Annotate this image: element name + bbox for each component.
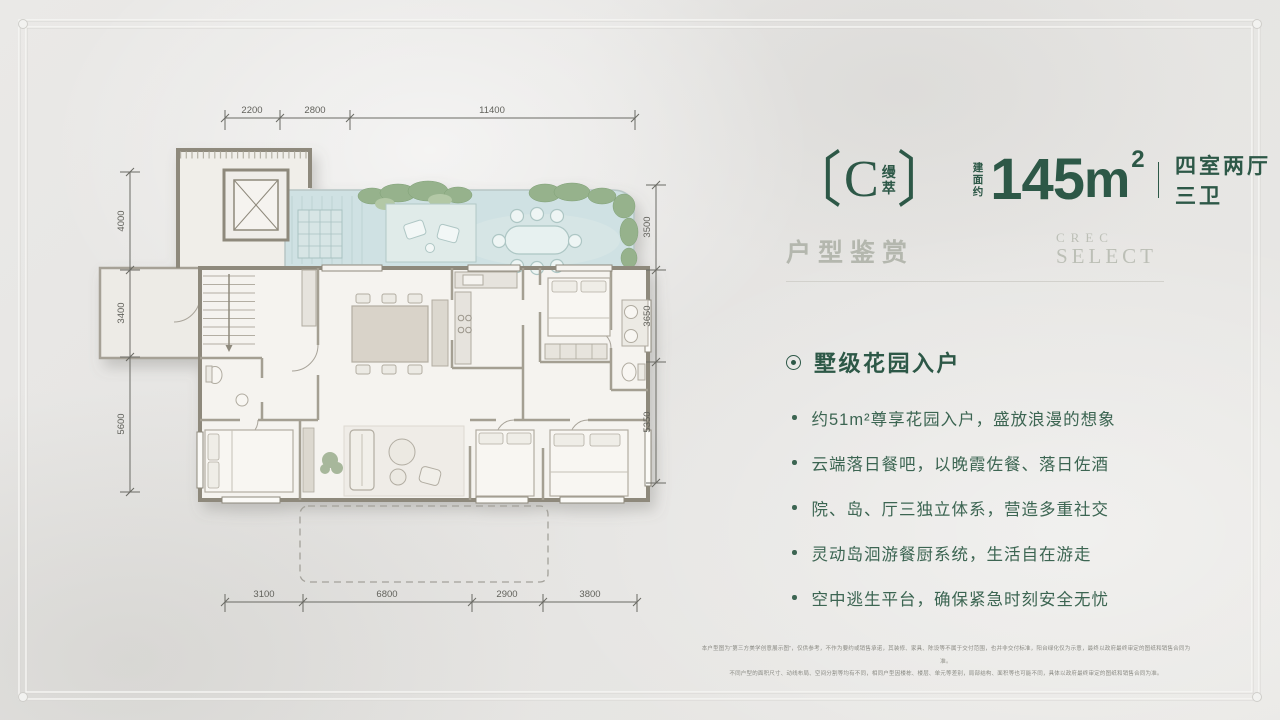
feature-item: 空中逃生平台，确保紧急时刻安全无忧 [786,575,1116,620]
dim-label: 3100 [253,589,274,600]
feature-heading-text: 墅级花园入户 [814,346,961,378]
feature-item-text: 约51m²尊享花园入户，盛放浪漫的想象 [812,406,1116,430]
area-unit: m [1084,154,1130,206]
bracket-left: 〔 [786,150,842,210]
dim-label: 2900 [496,589,517,600]
garden-terrace [285,181,638,275]
dining-area [352,294,448,374]
dim-label: 3500 [642,216,653,237]
unit-header: 〔 C 缦 萃 〕 建 面 约 145 m 2 四室两厅三卫 [786,150,1280,210]
section-title: 户型鉴赏 [786,233,914,269]
area-prefix-char: 建 [973,162,984,174]
page: 2200 2800 11400 4000 3400 5600 3500 3650… [0,0,1280,720]
area-value: 145 [990,152,1084,208]
area-prefix: 建 面 约 [973,162,984,198]
brand-line-1: CREC [1056,231,1157,245]
dim-label: 11400 [479,105,505,116]
dim-label: 3800 [579,589,600,600]
bullet-dot-icon [792,550,797,555]
dim-label: 2800 [304,105,325,116]
area-superscript: 2 [1131,146,1144,174]
unit-name: 缦 萃 [882,164,897,196]
area-prefix-char: 面 [973,174,984,186]
garden-trellis [298,210,342,258]
bullet-dot-icon [792,505,797,510]
bullet-dot-icon [792,415,797,420]
lower-terrace-outline [300,506,548,582]
dim-label: 4000 [116,210,127,231]
unit-name-char: 缦 [882,164,897,180]
feature-heading: 墅级花园入户 [786,346,961,378]
elevator-icon [224,170,288,240]
brand-logo: CREC SELECT [1056,231,1157,268]
disclaimer-line-2: 不同户型的面积尺寸、动线布局、空间分割等均有不同，相同户型因楼栋、楼层、单元等差… [700,668,1192,681]
area-prefix-char: 约 [973,186,984,198]
garden-lounge [386,204,476,262]
foyer-closet [302,270,316,326]
bedroom-bottom-left [205,430,293,492]
feature-item: 云端落日餐吧，以晚霞佐餐、落日佐酒 [786,440,1116,485]
dim-label: 3400 [116,302,127,323]
dim-label: 3650 [642,305,653,326]
bullseye-icon [786,355,801,370]
dim-label: 2200 [241,105,262,116]
brand-line-2: SELECT [1056,245,1157,268]
bedroom-top-right [545,278,610,359]
dim-label: 6800 [376,589,397,600]
feature-item-text: 空中逃生平台，确保紧急时刻安全无忧 [812,586,1110,610]
disclaimer: 本户型图为“第三方美学创意展示图”，仅供参考，不作为要约或销售承诺，其装修、家具… [700,643,1192,681]
bedroom-bottom-right [550,430,628,496]
layout-label: 四室两厅三卫 [1175,150,1280,210]
kitchen-island [432,300,448,366]
feature-item: 灵动岛洄游餐厨系统，生活自在游走 [786,530,1116,575]
header-divider [1158,162,1159,198]
feature-item-text: 云端落日餐吧，以晚霞佐餐、落日佐酒 [812,451,1110,475]
feature-list: 约51m²尊享花园入户，盛放浪漫的想象 云端落日餐吧，以晚霞佐餐、落日佐酒 院、… [786,395,1116,620]
dim-label: 5600 [116,413,127,434]
feature-item: 约51m²尊享花园入户，盛放浪漫的想象 [786,395,1116,440]
feature-item-text: 灵动岛洄游餐厨系统，生活自在游走 [812,541,1092,565]
bracket-right: 〕 [897,150,953,210]
section-divider [786,281,1164,282]
bullet-dot-icon [792,460,797,465]
feature-item: 院、岛、厅三独立体系，营造多重社交 [786,485,1116,530]
unit-name-char: 萃 [882,180,897,196]
building [100,150,651,503]
disclaimer-line-1: 本户型图为“第三方美学创意展示图”，仅供参考，不作为要约或销售承诺，其装修、家具… [700,643,1192,668]
dim-label: 5350 [642,411,653,432]
feature-item-text: 院、岛、厅三独立体系，营造多重社交 [812,496,1110,520]
bedroom-bottom-middle [476,430,534,496]
bullet-dot-icon [792,595,797,600]
unit-letter: C [844,154,879,206]
